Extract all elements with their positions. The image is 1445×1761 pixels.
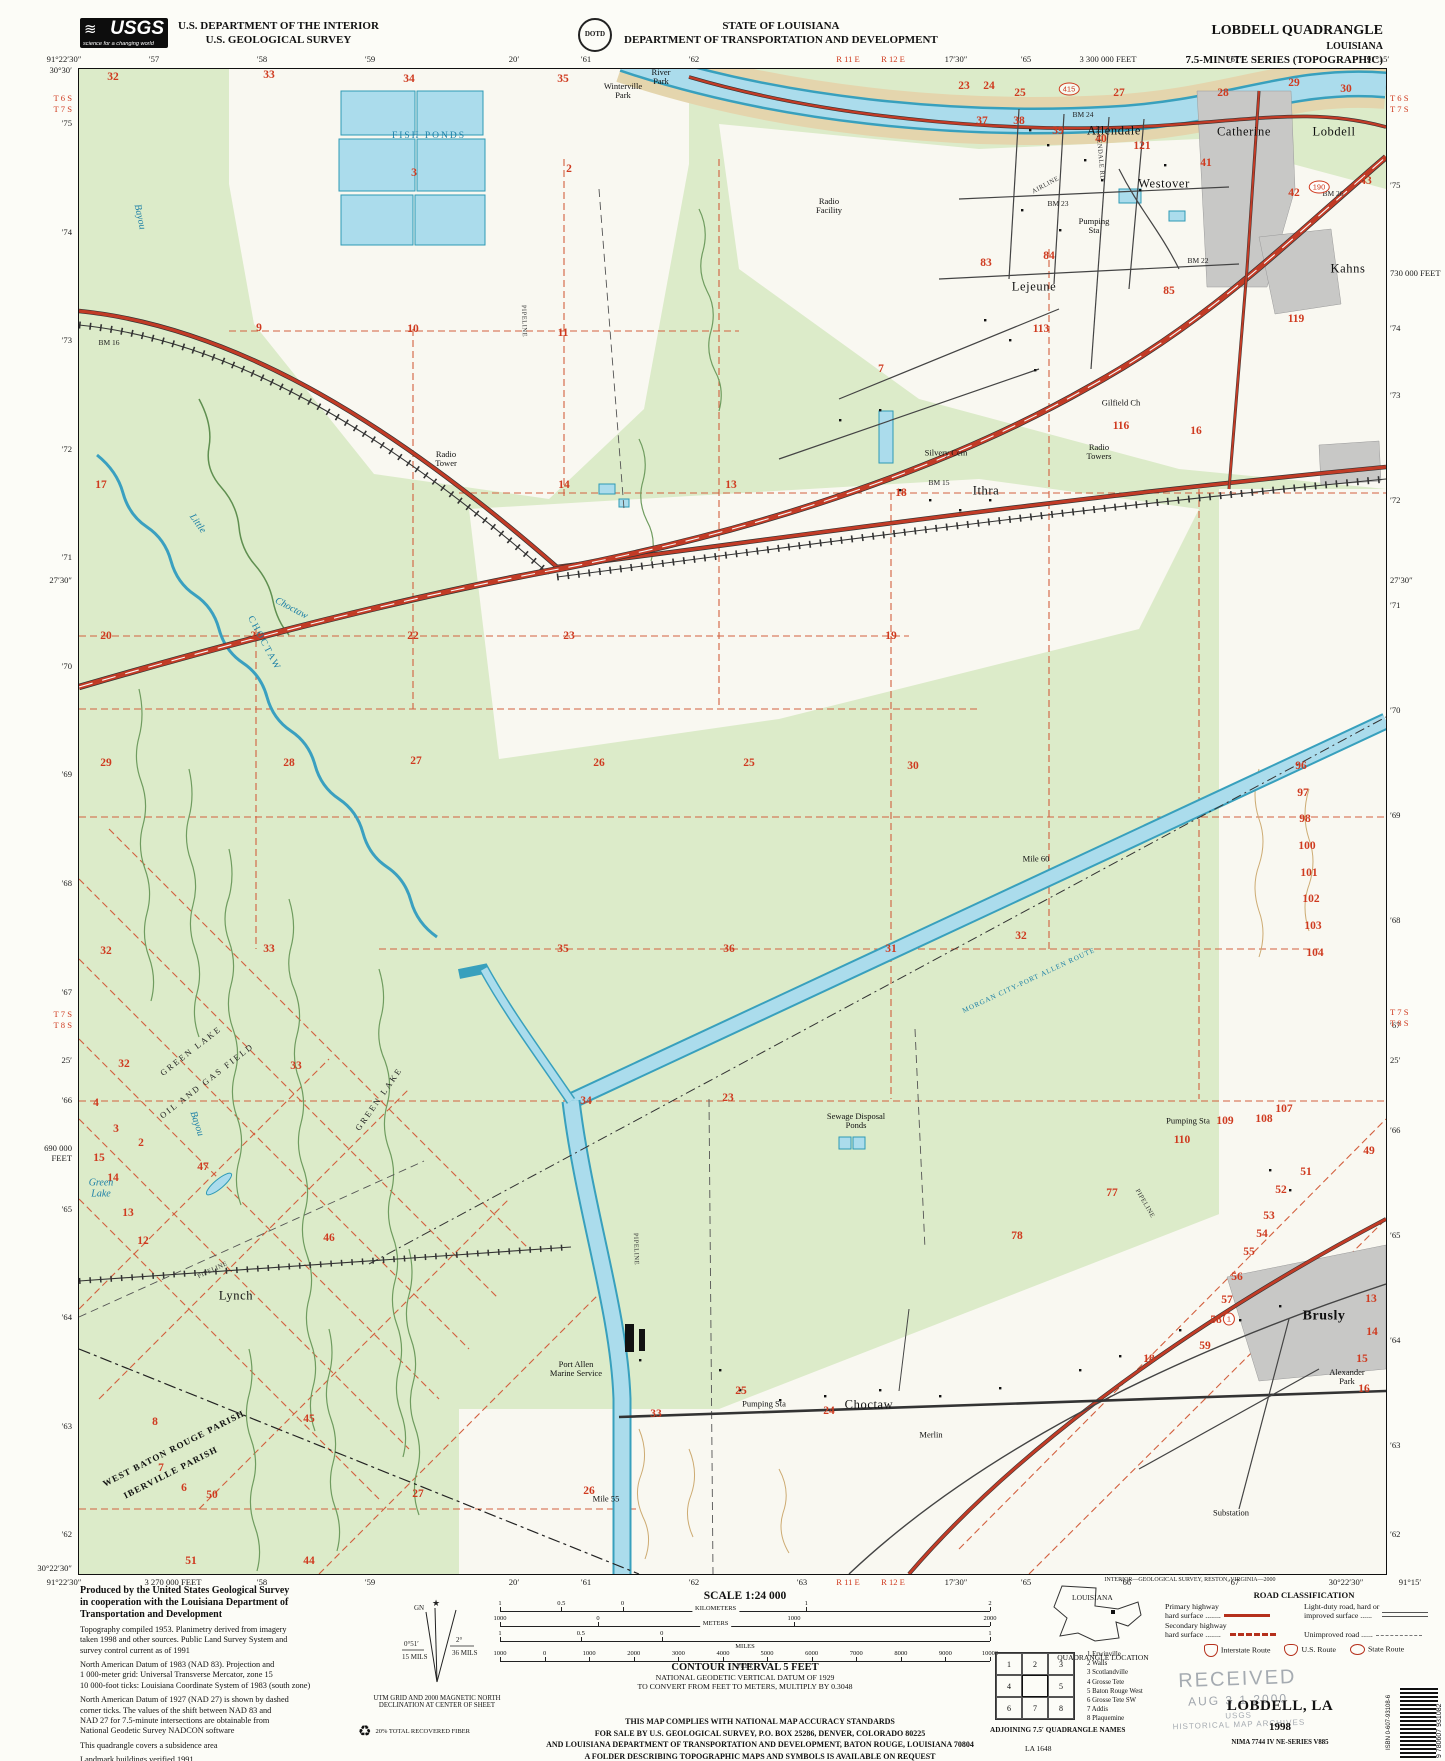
margin-label: ′62 xyxy=(1390,1529,1400,1539)
section-number: 16 xyxy=(1190,425,1202,437)
section-number: 113 xyxy=(1033,323,1050,335)
margin-label: 20′ xyxy=(509,1577,519,1587)
header-state: DOTD STATE OF LOUISIANA DEPARTMENT OF TR… xyxy=(578,18,938,52)
map-label: GREEN LAKE xyxy=(354,1066,404,1133)
adjoining-cell: 7 xyxy=(1022,1697,1048,1719)
adjoining-cell: 6 xyxy=(996,1697,1022,1719)
margin-label: ′70 xyxy=(1390,705,1400,715)
section-number: 31 xyxy=(885,943,897,955)
quad-series: 7.5-MINUTE SERIES (TOPOGRAPHIC) xyxy=(1185,53,1383,67)
section-number: 119 xyxy=(1288,313,1305,325)
section-number: 50 xyxy=(206,1489,218,1501)
margin-label: ′62 xyxy=(62,1529,72,1539)
section-number: 25 xyxy=(735,1385,747,1397)
map-label: Winterville Park xyxy=(604,82,642,100)
recycle-icon: ♻ xyxy=(358,1722,371,1741)
section-number: 33 xyxy=(263,943,275,955)
section-number: 96 xyxy=(1295,760,1307,772)
margin-label: ′66 xyxy=(62,1095,72,1105)
section-number: 6 xyxy=(181,1482,187,1494)
section-number: 29 xyxy=(1288,77,1300,89)
section-number: 55 xyxy=(1243,1246,1255,1258)
margin-label: ′74 xyxy=(1390,323,1400,333)
margin-label: 91°15′ xyxy=(1367,54,1390,64)
margin-label: ′63 xyxy=(1390,1440,1400,1450)
margin-label: R 11 E xyxy=(836,1577,860,1587)
section-number: 109 xyxy=(1216,1115,1233,1127)
margin-label: T 7 S xyxy=(1390,1007,1408,1017)
map-label: Brusly xyxy=(1303,1310,1346,1325)
section-number: 84 xyxy=(1043,250,1055,262)
margin-label: ′73 xyxy=(1390,390,1400,400)
interior-imprint: INTERIOR—GEOLOGICAL SURVEY, RESTON, VIRG… xyxy=(1040,1577,1340,1583)
section-number: 27 xyxy=(410,755,422,767)
map-label: Lejeune xyxy=(1012,280,1056,293)
map-label: PIPELINE xyxy=(519,305,527,337)
map-name: LOBDELL, LA xyxy=(1195,1698,1365,1715)
section-number: 27 xyxy=(412,1488,424,1500)
road-classification: ROAD CLASSIFICATION Primary highwayhard … xyxy=(1165,1590,1443,1657)
margin-label: ′62 xyxy=(689,54,699,64)
margin-label: ′67 xyxy=(62,987,72,997)
barcode-number: 9 780607 931082 xyxy=(1436,1704,1443,1759)
declination-diagram: ★ GN 0°51′ 15 MILS 2° 36 MILS UTM GRID A… xyxy=(362,1596,512,1709)
map-label: Mile 55 xyxy=(593,1495,620,1504)
section-number: 45 xyxy=(303,1413,315,1425)
section-number: 13 xyxy=(725,479,737,491)
dept-interior: U.S. DEPARTMENT OF THE INTERIOR xyxy=(178,20,379,34)
margin-label: ′71 xyxy=(62,552,72,562)
map-label: River Park xyxy=(652,68,671,86)
section-number: 3 xyxy=(411,167,417,179)
section-number: 27 xyxy=(1113,87,1125,99)
map-label: Green Lake xyxy=(89,1179,114,1200)
credits-p1: Topography compiled 1953. Planimetry der… xyxy=(80,1625,380,1656)
usgs-tagline: science for a changing world xyxy=(83,41,154,47)
margin-label: ′72 xyxy=(1390,495,1400,505)
credits-block: Produced by the United States Geological… xyxy=(80,1585,380,1761)
section-number: 104 xyxy=(1306,947,1323,959)
section-number: 33 xyxy=(263,69,275,81)
map-label-layer: 3233343523242527282930373839401214142433… xyxy=(79,69,1386,1574)
margin-label: ′61 xyxy=(581,54,591,64)
adjoining-quads: 12345678 1 Erwinville 2 Walls 3 Scotland… xyxy=(995,1652,1075,1720)
louisiana-outline-icon: LOUISIANA xyxy=(1048,1580,1158,1646)
section-number: 30 xyxy=(907,760,919,772)
section-number: 85 xyxy=(1163,285,1175,297)
la-code: LA 1648 xyxy=(1025,1744,1051,1753)
section-number: 32 xyxy=(100,945,112,957)
margin-label: ′66 xyxy=(1390,1125,1400,1135)
svg-text:36 MILS: 36 MILS xyxy=(452,1649,478,1657)
margin-label: 91°22′30″ xyxy=(47,1577,82,1587)
section-number: 33 xyxy=(290,1060,302,1072)
section-number: 52 xyxy=(1275,1184,1287,1196)
section-number: 43 xyxy=(1360,175,1372,187)
margin-label: ′70 xyxy=(62,661,72,671)
margin-label: ′68 xyxy=(1390,915,1400,925)
map-label: Bayou xyxy=(187,1110,205,1138)
margin-label: ′65 xyxy=(62,1204,72,1214)
map-label: AIRLINE xyxy=(1031,176,1060,196)
section-number: 41 xyxy=(1200,157,1212,169)
route-shield: 1 xyxy=(1223,1313,1235,1326)
margin-label: ′74 xyxy=(62,227,72,237)
scale-bar-miles: 10.501MILES xyxy=(500,1632,990,1652)
map-label: Radio Towers xyxy=(1087,443,1112,461)
svg-text:15 MILS: 15 MILS xyxy=(402,1653,428,1661)
map-label: Westover xyxy=(1138,177,1190,190)
margin-label: ′64 xyxy=(1390,1335,1400,1345)
section-number: 11 xyxy=(558,327,569,339)
margin-label: ′75 xyxy=(62,118,72,128)
map-label: Radio Tower xyxy=(435,450,457,468)
map-label: MORGAN CITY-PORT ALLEN ROUTE xyxy=(962,947,1097,1015)
isbn-text: ISBN 0-607-93108-6 xyxy=(1386,1695,1392,1750)
map-label: BM 23 xyxy=(1047,200,1068,208)
section-number: 39 xyxy=(1052,125,1064,137)
section-number: 9 xyxy=(256,322,262,334)
section-number: 26 xyxy=(593,757,605,769)
section-number: 29 xyxy=(100,757,112,769)
margin-label: ′59 xyxy=(365,54,375,64)
margin-label: 25′ xyxy=(1390,1055,1400,1065)
adjoining-cell xyxy=(1022,1675,1048,1697)
margin-label: 3 300 000 FEET xyxy=(1079,54,1136,64)
section-number: 51 xyxy=(185,1555,197,1567)
section-number: 35 xyxy=(557,73,569,85)
section-number: 36 xyxy=(723,943,735,955)
map-label: Little xyxy=(187,512,208,535)
map-label: BM 22 xyxy=(1187,257,1208,265)
contour-convert: TO CONVERT FROM FEET TO METERS, MULTIPLY… xyxy=(500,1682,990,1691)
map-label: WEST BATON ROUGE PARISH xyxy=(102,1409,247,1489)
section-number: 15 xyxy=(1356,1353,1368,1365)
margin-label: T 8 S xyxy=(1390,1018,1408,1028)
section-number: 13 xyxy=(122,1207,134,1219)
margin-label: ′67 xyxy=(1229,54,1239,64)
scale-block: SCALE 1:24 000 10.5012KILOMETERS10000100… xyxy=(500,1590,990,1672)
section-number: 2 xyxy=(566,163,572,175)
quad-state: LOUISIANA xyxy=(1185,40,1383,53)
margin-label: ′73 xyxy=(62,335,72,345)
margin-label: 27′30″ xyxy=(1390,575,1413,585)
margin-label: 20′ xyxy=(509,54,519,64)
svg-text:0°51′: 0°51′ xyxy=(404,1640,419,1648)
dept-survey: U.S. GEOLOGICAL SURVEY xyxy=(178,34,379,48)
section-number: 17 xyxy=(95,479,107,491)
map-label: Pumping Sta xyxy=(1166,1117,1210,1126)
light-duty-sample xyxy=(1382,1612,1428,1617)
section-number: 116 xyxy=(1113,420,1130,432)
section-number: 57 xyxy=(1221,1294,1233,1306)
map-title-block: LOBDELL, LA 1998 NIMA 7744 IV NE-SERIES … xyxy=(1195,1698,1365,1746)
scale-bar-meters: 1000010002000METERS xyxy=(500,1617,990,1632)
section-number: 34 xyxy=(580,1095,592,1107)
section-number: 2 xyxy=(138,1137,144,1149)
margin-label: T 6 S xyxy=(1390,93,1408,103)
section-number: 3 xyxy=(113,1123,119,1135)
state-title: STATE OF LOUISIANA xyxy=(624,20,938,34)
route-shield-legend: Interstate Route U.S. Route State Route xyxy=(1165,1644,1443,1657)
svg-text:GN: GN xyxy=(414,1604,424,1612)
section-number: 42 xyxy=(1288,187,1300,199)
section-number: 10 xyxy=(407,323,419,335)
section-number: 12 xyxy=(137,1235,149,1247)
section-number: 32 xyxy=(1015,930,1027,942)
map-series: NIMA 7744 IV NE-SERIES V885 xyxy=(1195,1739,1365,1746)
contour-interval: CONTOUR INTERVAL 5 FEET xyxy=(500,1662,990,1673)
section-number: 19 xyxy=(885,630,897,642)
margin-label: T 7 S xyxy=(54,1009,72,1019)
map-label: Bayou xyxy=(131,203,147,230)
map-label: Pumping Sta xyxy=(1079,217,1110,235)
section-number: 28 xyxy=(283,757,295,769)
section-number: 46 xyxy=(323,1232,335,1244)
section-number: 18 xyxy=(1143,1353,1155,1365)
margin-label: ′65 xyxy=(1021,54,1031,64)
map-label: BM 16 xyxy=(98,339,119,347)
margin-label: ′64 xyxy=(62,1312,72,1322)
dotd-logo-icon: DOTD xyxy=(578,18,612,52)
section-number: 35 xyxy=(557,943,569,955)
section-number: 83 xyxy=(980,257,992,269)
map-label: Choctaw xyxy=(845,1398,894,1411)
route-shield: 415 xyxy=(1059,83,1080,96)
adjoining-cell: 5 xyxy=(1048,1675,1074,1697)
scale-title: SCALE 1:24 000 xyxy=(500,1590,990,1602)
section-number: 28 xyxy=(1217,87,1229,99)
map-label: Sewage Disposal Ponds xyxy=(827,1112,885,1130)
section-number: 107 xyxy=(1275,1103,1292,1115)
margin-label: 17′30″ xyxy=(945,1577,968,1587)
secondary-highway-sample xyxy=(1230,1633,1276,1636)
sale-lines: THIS MAP COMPLIES WITH NATIONAL MAP ACCU… xyxy=(430,1716,1090,1761)
margin-label: ′57 xyxy=(149,54,159,64)
section-number: 33 xyxy=(650,1408,662,1420)
section-number: 100 xyxy=(1298,840,1315,852)
margin-label: 690 000 FEET xyxy=(44,1143,72,1163)
state-lines: STATE OF LOUISIANA DEPARTMENT OF TRANSPO… xyxy=(624,18,938,52)
margin-label: T 7 S xyxy=(54,104,72,114)
declination-caption: UTM GRID AND 2000 MAGNETIC NORTH DECLINA… xyxy=(362,1695,512,1709)
section-number: 32 xyxy=(118,1058,130,1070)
section-number: 108 xyxy=(1255,1113,1272,1125)
section-number: 20 xyxy=(100,630,112,642)
adjoining-cell: 8 xyxy=(1048,1697,1074,1719)
declination-arrows: ★ GN 0°51′ 15 MILS 2° 36 MILS xyxy=(362,1596,512,1688)
map-label: Alexander Park xyxy=(1329,1368,1364,1386)
map-label: OIL AND GAS FIELD xyxy=(158,1042,255,1121)
unimproved-road-sample xyxy=(1376,1635,1422,1636)
margin-label: T 8 S xyxy=(54,1020,72,1030)
section-number: 51 xyxy=(1300,1166,1312,1178)
department-lines: U.S. DEPARTMENT OF THE INTERIOR U.S. GEO… xyxy=(178,18,379,48)
adjoining-cell: 1 xyxy=(996,1653,1022,1675)
section-number: 18 xyxy=(895,487,907,499)
margin-label: 91°22′30″ xyxy=(47,54,82,64)
margin-label: ′63 xyxy=(62,1421,72,1431)
section-number: 14 xyxy=(1366,1326,1378,1338)
section-number: 15 xyxy=(93,1152,105,1164)
map-label: BM 24 xyxy=(1072,111,1093,119)
margin-label: R 12 E xyxy=(881,1577,905,1587)
adjoining-cell: 3 xyxy=(1048,1653,1074,1675)
section-number: 77 xyxy=(1106,1187,1118,1199)
map-label: Pumping Sta xyxy=(742,1400,786,1409)
map-label: Mile 60 xyxy=(1023,855,1050,864)
state-route-shield-icon xyxy=(1350,1644,1365,1655)
section-number: 103 xyxy=(1304,920,1321,932)
section-number: 58 xyxy=(1210,1314,1222,1326)
section-number: 4 xyxy=(93,1097,99,1109)
map-label: PIPELINE xyxy=(631,1233,639,1265)
margin-label: 25′ xyxy=(62,1055,72,1065)
section-number: 14 xyxy=(558,479,570,491)
margin-label: ′58 xyxy=(257,54,267,64)
map-label: PIPELINE xyxy=(197,1261,229,1281)
section-number: 8 xyxy=(152,1416,158,1428)
credits-p2: North American Datum of 1983 (NAD 83). P… xyxy=(80,1660,380,1691)
map-label: FISH PONDS xyxy=(392,132,466,142)
primary-highway-sample xyxy=(1224,1614,1270,1617)
section-number: 49 xyxy=(1363,1145,1375,1157)
section-number: 23 xyxy=(722,1092,734,1104)
section-number: 24 xyxy=(983,80,995,92)
adjoining-cell: 2 xyxy=(1022,1653,1048,1675)
section-number: 23 xyxy=(563,630,575,642)
section-number: 24 xyxy=(823,1405,835,1417)
margin-label: R 11 E xyxy=(836,54,860,64)
section-number: 97 xyxy=(1297,787,1309,799)
section-number: 121 xyxy=(1133,140,1150,152)
section-number: 47 xyxy=(197,1161,209,1173)
section-number: 56 xyxy=(1231,1271,1243,1283)
credits-p5: Landmark buildings verified 1991 xyxy=(80,1755,380,1761)
header-quadrangle: LOBDELL QUADRANGLE LOUISIANA 7.5-MINUTE … xyxy=(1185,22,1383,67)
header-usgs: ≋ USGS science for a changing world U.S.… xyxy=(80,18,379,48)
map-label: Gilfield Ch xyxy=(1102,399,1140,408)
section-number: 98 xyxy=(1299,813,1311,825)
interstate-shield-icon xyxy=(1204,1644,1218,1657)
map-label: CHOCTAW xyxy=(244,615,281,673)
section-number: 30 xyxy=(1340,83,1352,95)
adjoining-cell: 4 xyxy=(996,1675,1022,1697)
section-number: 25 xyxy=(1014,87,1026,99)
section-number: 22 xyxy=(407,630,419,642)
margin-label: T 6 S xyxy=(54,93,72,103)
section-number: 13 xyxy=(1365,1293,1377,1305)
margin-label: ′68 xyxy=(62,878,72,888)
road-class-title: ROAD CLASSIFICATION xyxy=(1165,1590,1443,1600)
margin-label: ′69 xyxy=(62,769,72,779)
section-number: 7 xyxy=(878,363,884,375)
section-number: 101 xyxy=(1300,867,1317,879)
margin-label: ′65 xyxy=(1390,1230,1400,1240)
map-label: Radio Facility xyxy=(816,197,842,215)
margin-label: ′75 xyxy=(1390,180,1400,190)
section-number: 23 xyxy=(958,80,970,92)
section-number: 102 xyxy=(1302,893,1319,905)
state-dept: DEPARTMENT OF TRANSPORTATION AND DEVELOP… xyxy=(624,34,938,48)
us-route-shield-icon xyxy=(1284,1644,1298,1656)
margin-label: R 12 E xyxy=(881,54,905,64)
map-label: Catherine xyxy=(1217,125,1271,138)
section-number: 78 xyxy=(1011,1230,1023,1242)
scale-bar-kilometers: 10.5012KILOMETERS xyxy=(500,1602,990,1617)
section-number: 110 xyxy=(1174,1134,1191,1146)
section-number: 53 xyxy=(1263,1210,1275,1222)
map-label: BM 15 xyxy=(928,479,949,487)
svg-text:2°: 2° xyxy=(456,1636,463,1644)
map-label: PIPELINE xyxy=(1133,1188,1155,1219)
section-number: 54 xyxy=(1256,1228,1268,1240)
credits-p4: This quadrangle covers a subsidence area xyxy=(80,1741,380,1751)
margin-label: 91°15′ xyxy=(1399,1577,1422,1587)
section-number: 25 xyxy=(743,757,755,769)
map-label: Ithra xyxy=(973,484,1000,497)
map-label: Silvery Cem xyxy=(925,449,968,458)
margin-label: ′61 xyxy=(581,1577,591,1587)
map-label: Lynch xyxy=(219,1289,253,1302)
margin-label: 17′30″ xyxy=(945,54,968,64)
adjoining-grid: 12345678 xyxy=(995,1652,1075,1720)
section-number: 38 xyxy=(1013,115,1025,127)
map-label: Port Allen Marine Service xyxy=(550,1360,602,1378)
section-number: 32 xyxy=(107,71,119,83)
margin-label: 30°22′30″ xyxy=(37,1563,72,1573)
credits-title: Produced by the United States Geological… xyxy=(80,1585,380,1621)
usgs-logo: ≋ USGS science for a changing world xyxy=(80,18,168,48)
margin-label: ′69 xyxy=(1390,810,1400,820)
louisiana-label: LOUISIANA xyxy=(1072,1593,1113,1602)
contour-datum: NATIONAL GEODETIC VERTICAL DATUM OF 1929 xyxy=(500,1673,990,1682)
map-label: Choctaw xyxy=(273,596,309,622)
margin-label: ′71 xyxy=(1390,600,1400,610)
topo-map-sheet: ≋ USGS science for a changing world U.S.… xyxy=(0,0,1445,1761)
usgs-wave-icon: ≋ xyxy=(84,20,95,39)
margin-label: T 7 S xyxy=(1390,104,1408,114)
map-year: 1998 xyxy=(1195,1721,1365,1733)
svg-text:★: ★ xyxy=(432,1598,440,1608)
quad-title: LOBDELL QUADRANGLE xyxy=(1185,22,1383,40)
margin-label: 730 000 FEET xyxy=(1390,268,1441,278)
map-area: 3233343523242527282930373839401214142433… xyxy=(78,68,1387,1575)
contour-block: CONTOUR INTERVAL 5 FEET NATIONAL GEODETI… xyxy=(500,1662,990,1691)
margin-label: ′63 xyxy=(797,1577,807,1587)
section-number: 59 xyxy=(1199,1340,1211,1352)
route-shield: 190 xyxy=(1309,181,1330,194)
margin-label: 30°30′ xyxy=(49,65,72,75)
map-label: Merlin xyxy=(919,1431,942,1440)
section-number: 44 xyxy=(303,1555,315,1567)
margin-label: ′72 xyxy=(62,444,72,454)
section-number: 34 xyxy=(403,73,415,85)
margin-label: 27′30″ xyxy=(49,575,72,585)
margin-label: ′62 xyxy=(689,1577,699,1587)
credits-p3: North American Datum of 1927 (NAD 27) is… xyxy=(80,1695,380,1736)
map-label: Kahns xyxy=(1331,262,1366,275)
section-number: 37 xyxy=(976,115,988,127)
map-label: Substation xyxy=(1213,1509,1249,1518)
map-label: Lobdell xyxy=(1312,125,1355,138)
barcode xyxy=(1400,1686,1438,1758)
